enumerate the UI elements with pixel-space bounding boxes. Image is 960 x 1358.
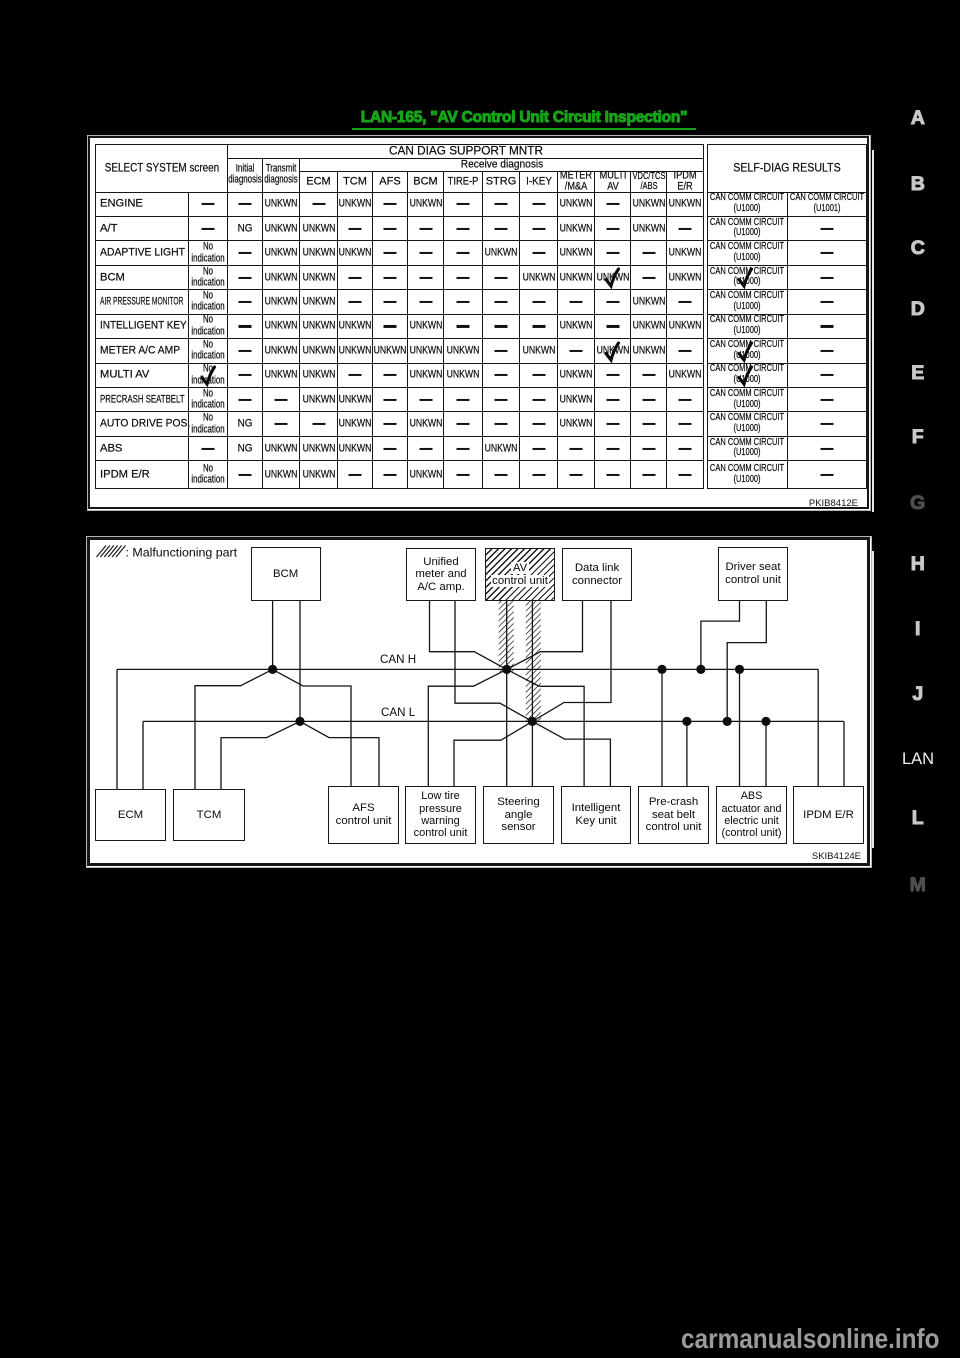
svg-text:CAN L: CAN L — [381, 706, 416, 719]
svg-text:CAN H: CAN H — [380, 653, 416, 666]
svg-text:: Malfunctioning part: : Malfunctioning part — [126, 546, 238, 560]
